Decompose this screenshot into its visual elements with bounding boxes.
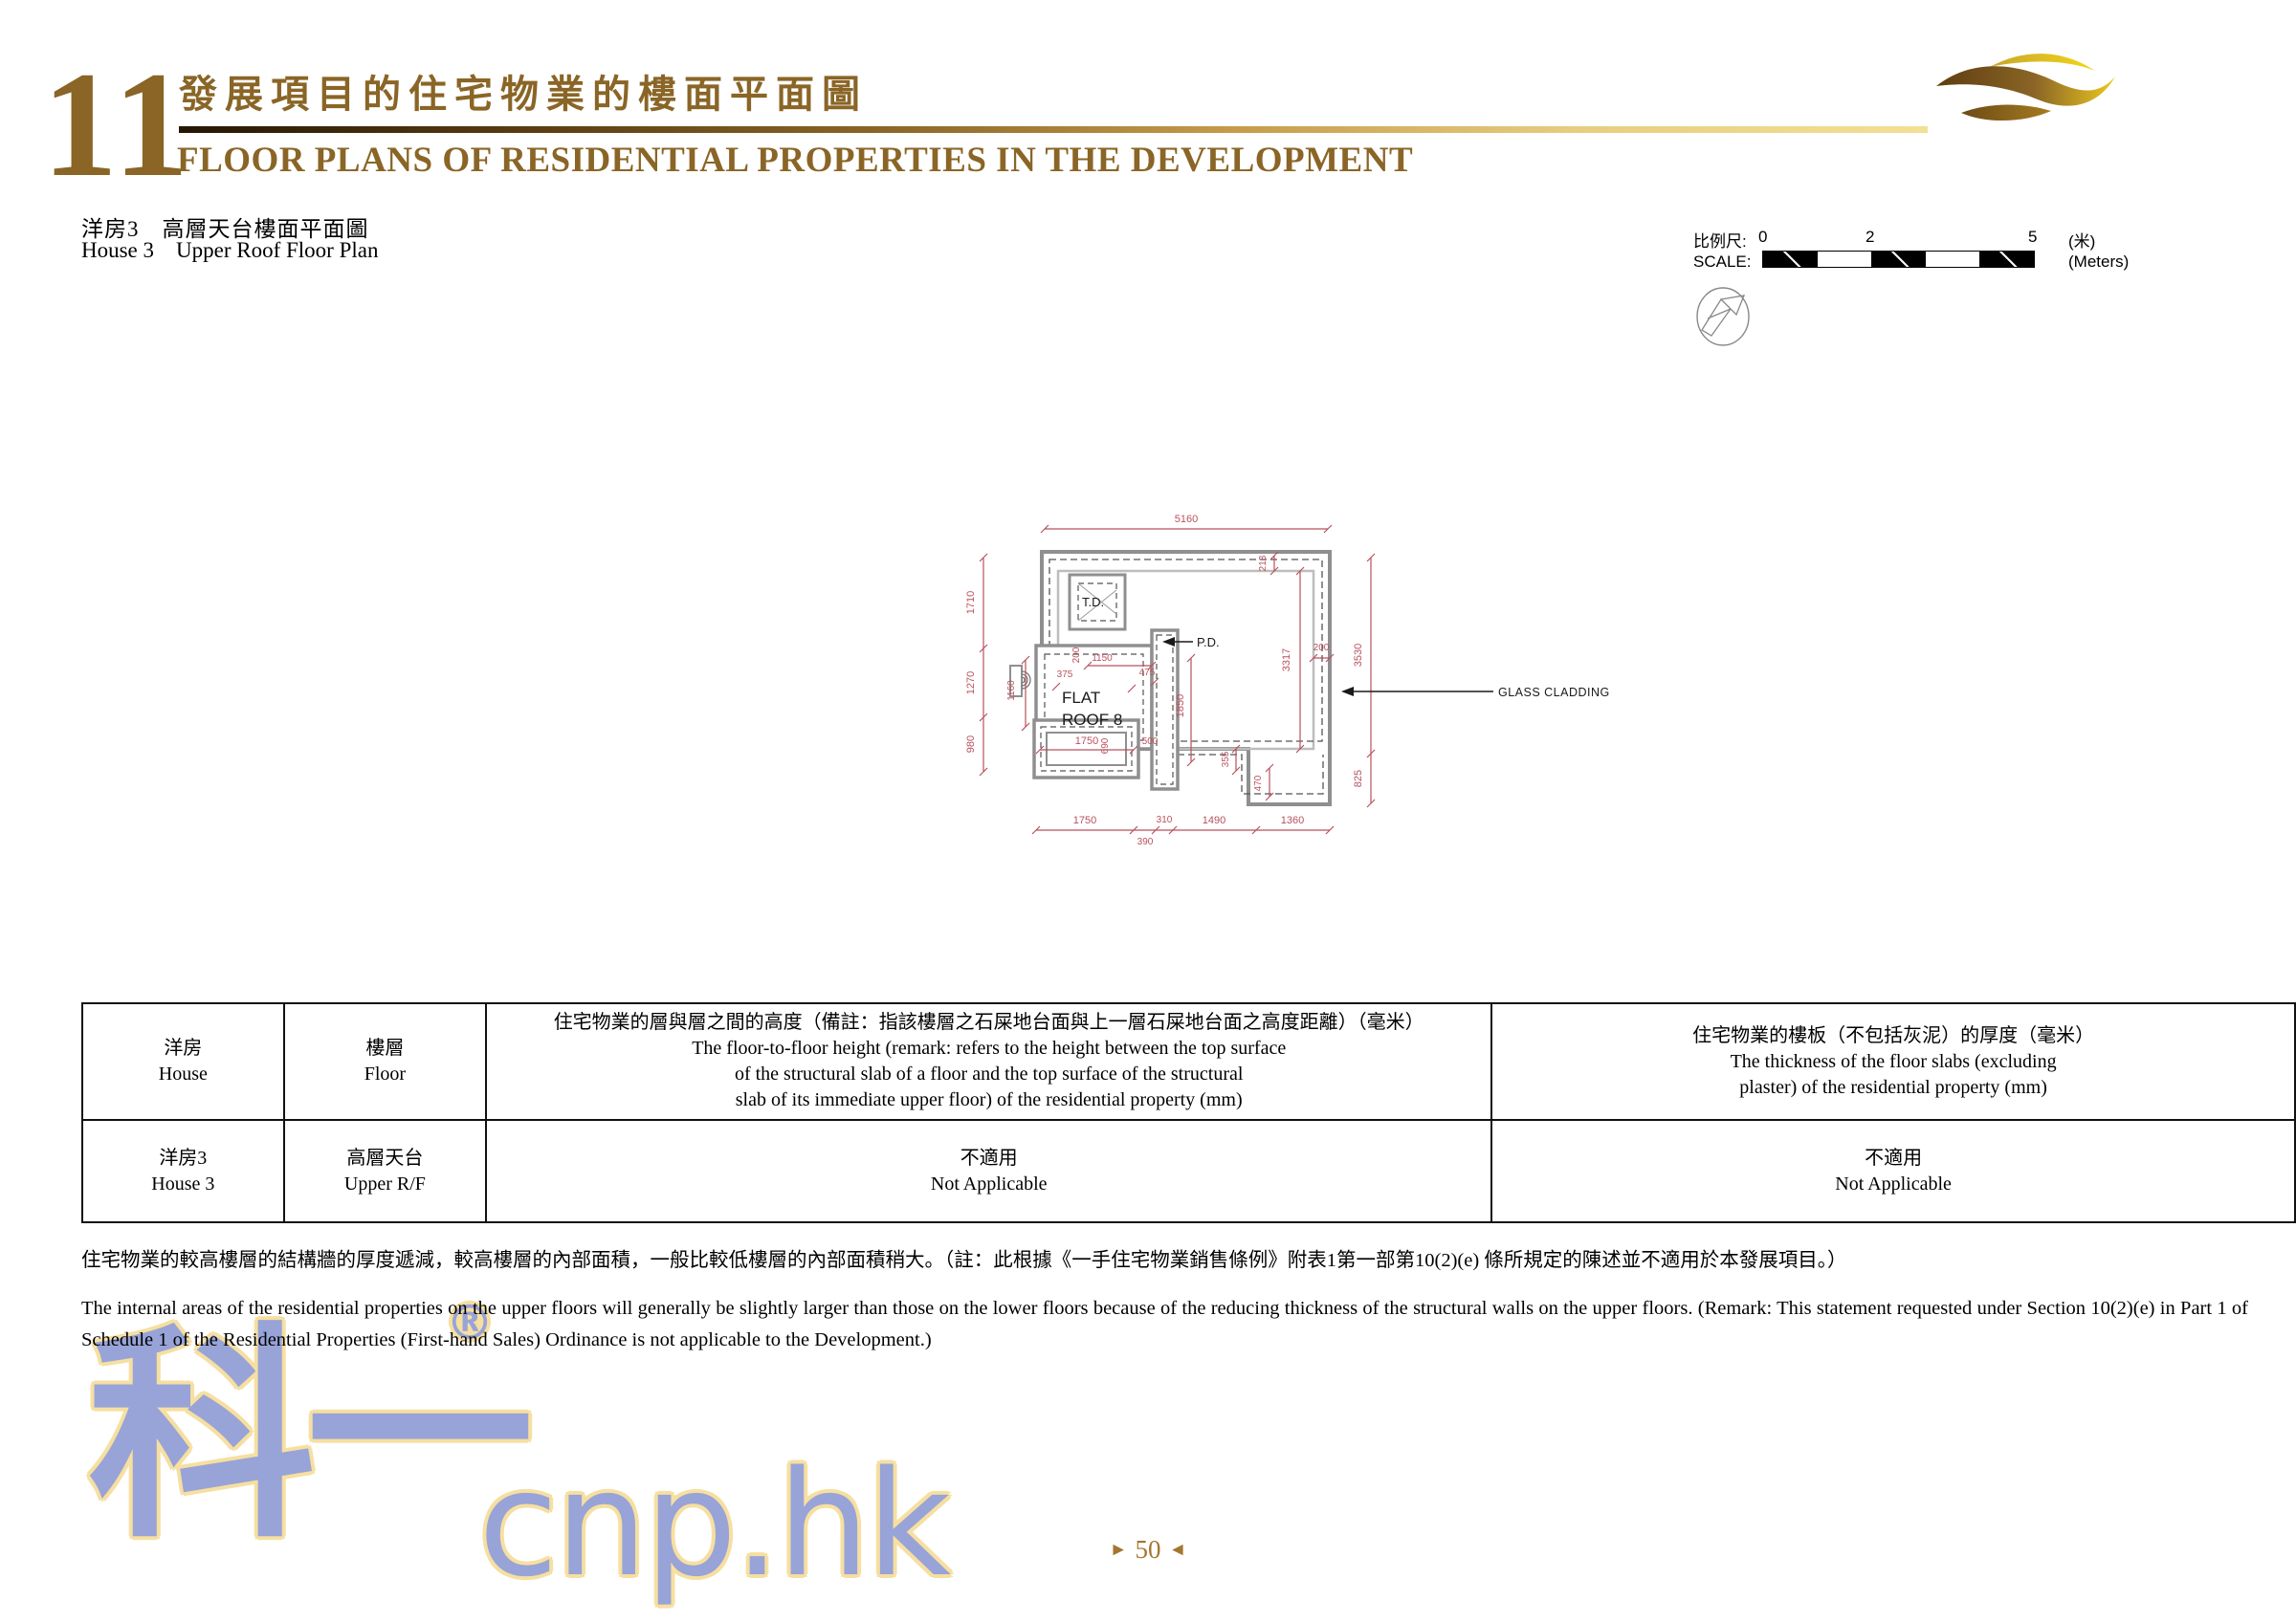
dim-3317: 3317 — [1281, 648, 1292, 671]
cell-f2f-na-en: Not Applicable — [500, 1172, 1477, 1197]
page-number-value: 50 — [1136, 1535, 1161, 1564]
header-house-en: House — [97, 1062, 270, 1087]
cell-house3: 洋房3 House 3 — [82, 1120, 284, 1222]
dim-980: 980 — [965, 735, 977, 753]
glass-cladding-label: GLASS CLADDING — [1498, 686, 1610, 699]
floor-height-table: 洋房 House 樓層 Floor 住宅物業的層與層之間的高度（備註：指該樓層之… — [81, 1002, 2296, 1223]
dim-1750-box: 1750 — [1075, 735, 1098, 747]
header-slab-en1: The thickness of the floor slabs (exclud… — [1506, 1049, 2281, 1075]
page-title-zh: 發展項目的住宅物業的樓面平面圖 — [179, 63, 868, 119]
dim-5160: 5160 — [1175, 514, 1198, 525]
scale-seg-black — [1979, 252, 2034, 267]
note-en: The internal areas of the residential pr… — [81, 1293, 2248, 1356]
scale-seg-white — [1818, 252, 1871, 267]
dim-1270: 1270 — [965, 671, 977, 694]
header-floor-zh: 樓層 — [298, 1036, 473, 1062]
note-zh: 住宅物業的較高樓層的結構牆的厚度遞減，較高樓層的內部面積，一般比較低樓層的內部面… — [81, 1243, 2282, 1272]
scale-tick-0: 0 — [1758, 228, 1767, 247]
cell-house3-zh: 洋房3 — [97, 1146, 270, 1172]
watermark-domain: cnp.hk — [478, 1452, 948, 1597]
dim-825: 825 — [1353, 770, 1364, 787]
cell-f2f-na-zh: 不適用 — [500, 1146, 1477, 1172]
chapter-number: 11 — [42, 50, 192, 201]
room-label-line2: ROOF 8 — [1062, 711, 1122, 729]
brochure-page: 11 發展項目的住宅物業的樓面平面圖 FLOOR PLANS OF RESIDE… — [0, 0, 2296, 1623]
plan-subtitle-en: House 3 Upper Roof Floor Plan — [81, 238, 378, 263]
dim-1160: 1160 — [1006, 680, 1017, 701]
header-f2f-en2: of the structural slab of a floor and th… — [500, 1062, 1477, 1087]
floor-plan-drawing: 5160 1710 1270 980 3530 825 213 3317 200… — [957, 507, 1770, 870]
dim-475: 475 — [1139, 668, 1156, 678]
scale-label-en: SCALE: — [1693, 252, 1751, 272]
dim-200-right: 200 — [1314, 643, 1330, 653]
header-slab-zh: 住宅物業的樓板（不包括灰泥）的厚度（毫米） — [1506, 1023, 2281, 1049]
cell-upper-rf-en: Upper R/F — [298, 1172, 473, 1197]
dim-1150: 1150 — [1092, 653, 1113, 664]
cell-slab-na-zh: 不適用 — [1506, 1146, 2281, 1172]
glass-cladding-arrowhead — [1341, 687, 1354, 696]
td-label: T.D. — [1082, 595, 1104, 609]
dim-690: 690 — [1100, 737, 1111, 754]
pd-shaft — [1152, 630, 1178, 789]
dim-500: 500 — [1142, 736, 1159, 747]
table-header-row: 洋房 House 樓層 Floor 住宅物業的層與層之間的高度（備註：指該樓層之… — [82, 1003, 2295, 1120]
page-number: ►50◄ — [0, 1535, 2296, 1565]
north-arrow-icon — [1689, 282, 1757, 351]
scale-seg-white — [1926, 252, 1979, 267]
header-f2f-zh: 住宅物業的層與層之間的高度（備註：指該樓層之石屎地台面與上一層石屎地台面之高度距… — [500, 1010, 1477, 1036]
dim-1750-bottom: 1750 — [1073, 815, 1096, 826]
dim-1850: 1850 — [1175, 694, 1186, 717]
cell-f2f-na: 不適用 Not Applicable — [486, 1120, 1491, 1222]
gold-divider — [179, 126, 1928, 133]
scale-tick-5: 5 — [2028, 228, 2037, 247]
dim-3530: 3530 — [1353, 644, 1364, 667]
brand-swoosh-icon — [1934, 46, 2116, 137]
scale-label-zh: 比例尺: — [1693, 228, 1747, 252]
cell-upper-rf: 高層天台 Upper R/F — [284, 1120, 487, 1222]
header-floor-to-floor: 住宅物業的層與層之間的高度（備註：指該樓層之石屎地台面與上一層石屎地台面之高度距… — [486, 1003, 1491, 1120]
page-title-en: FLOOR PLANS OF RESIDENTIAL PROPERTIES IN… — [177, 140, 1413, 181]
dim-213: 213 — [1258, 555, 1269, 571]
dim-1490: 1490 — [1203, 815, 1225, 826]
scale-unit-en: (Meters) — [2068, 252, 2129, 272]
header-slab-thickness: 住宅物業的樓板（不包括灰泥）的厚度（毫米） The thickness of t… — [1491, 1003, 2295, 1120]
scale-tick-2: 2 — [1865, 228, 1874, 247]
dim-1710: 1710 — [965, 591, 977, 614]
header-slab-en2: plaster) of the residential property (mm… — [1506, 1075, 2281, 1101]
dim-470: 470 — [1253, 775, 1264, 791]
scale-seg-black — [1763, 252, 1818, 267]
header-house: 洋房 House — [82, 1003, 284, 1120]
cell-upper-rf-zh: 高層天台 — [298, 1146, 473, 1172]
dim-355: 355 — [1221, 751, 1231, 767]
table-data-row: 洋房3 House 3 高層天台 Upper R/F 不適用 Not Appli… — [82, 1120, 2295, 1222]
dim-200-left: 200 — [1071, 647, 1082, 663]
header-floor: 樓層 Floor — [284, 1003, 487, 1120]
cell-house3-en: House 3 — [97, 1172, 270, 1197]
dim-1360: 1360 — [1281, 815, 1304, 826]
page-prev-arrow-icon: ► — [1102, 1540, 1136, 1560]
cell-slab-na-en: Not Applicable — [1506, 1172, 2281, 1197]
dim-390: 390 — [1137, 837, 1154, 847]
header-floor-en: Floor — [298, 1062, 473, 1087]
dim-310: 310 — [1157, 815, 1173, 825]
header-f2f-en1: The floor-to-floor height (remark: refer… — [500, 1036, 1477, 1062]
header-f2f-en3: slab of its immediate upper floor) of th… — [500, 1087, 1477, 1113]
header-house-zh: 洋房 — [97, 1036, 270, 1062]
scale-unit-zh: (米) — [2068, 228, 2095, 252]
scale-bar: 比例尺: SCALE: 0 2 5 (米) (Meters) — [1693, 228, 2133, 285]
scale-bar-segments — [1762, 251, 2035, 268]
cell-slab-na: 不適用 Not Applicable — [1491, 1120, 2295, 1222]
room-label-line1: FLAT — [1062, 689, 1100, 707]
watermark-cjk: 科一 — [88, 1326, 524, 1553]
pd-label: P.D. — [1197, 635, 1220, 649]
dim-375: 375 — [1057, 669, 1073, 680]
scale-seg-black — [1871, 252, 1926, 267]
page-next-arrow-icon: ◄ — [1161, 1540, 1195, 1560]
